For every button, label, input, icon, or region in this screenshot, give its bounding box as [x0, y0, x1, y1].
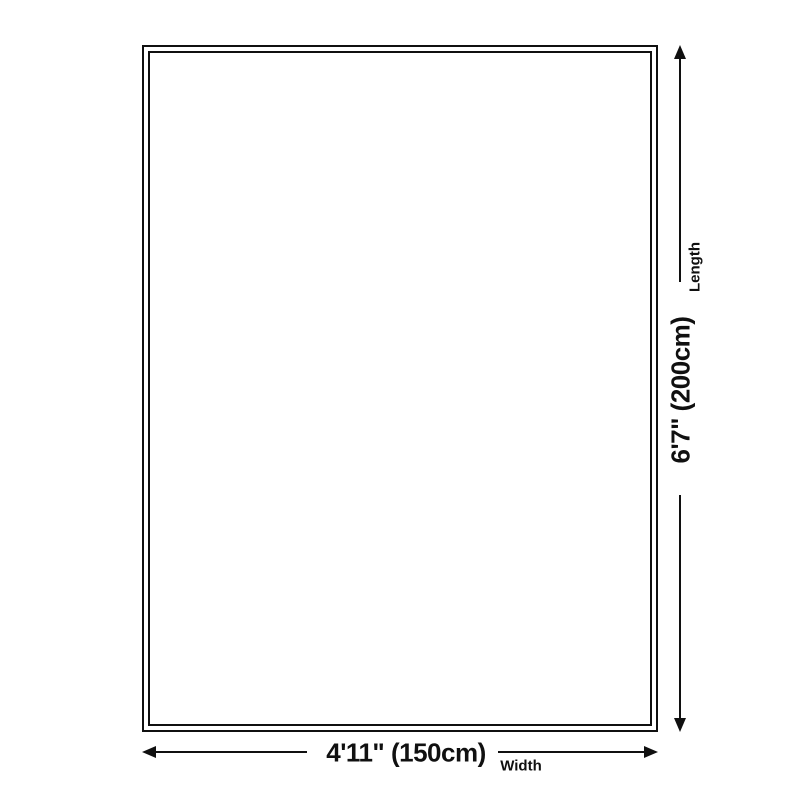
- product-outline: [142, 45, 658, 732]
- product-inner-border: [148, 51, 652, 726]
- width-value-label: 4'11" (150cm): [326, 738, 485, 769]
- width-dimension-line-left: [155, 751, 307, 753]
- length-dimension-line-upper: [679, 56, 681, 282]
- length-axis-label: Length: [687, 242, 704, 292]
- arrow-down-icon: [674, 718, 686, 732]
- length-value-label: 6'7" (200cm): [666, 317, 697, 464]
- width-axis-label: Width: [500, 758, 542, 775]
- length-dimension-line-lower: [679, 495, 681, 720]
- width-dimension-line-right: [498, 751, 645, 753]
- size-diagram: Length 6'7" (200cm) 4'11" (150cm) Width: [0, 0, 800, 800]
- arrow-left-icon: [142, 746, 156, 758]
- arrow-right-icon: [644, 746, 658, 758]
